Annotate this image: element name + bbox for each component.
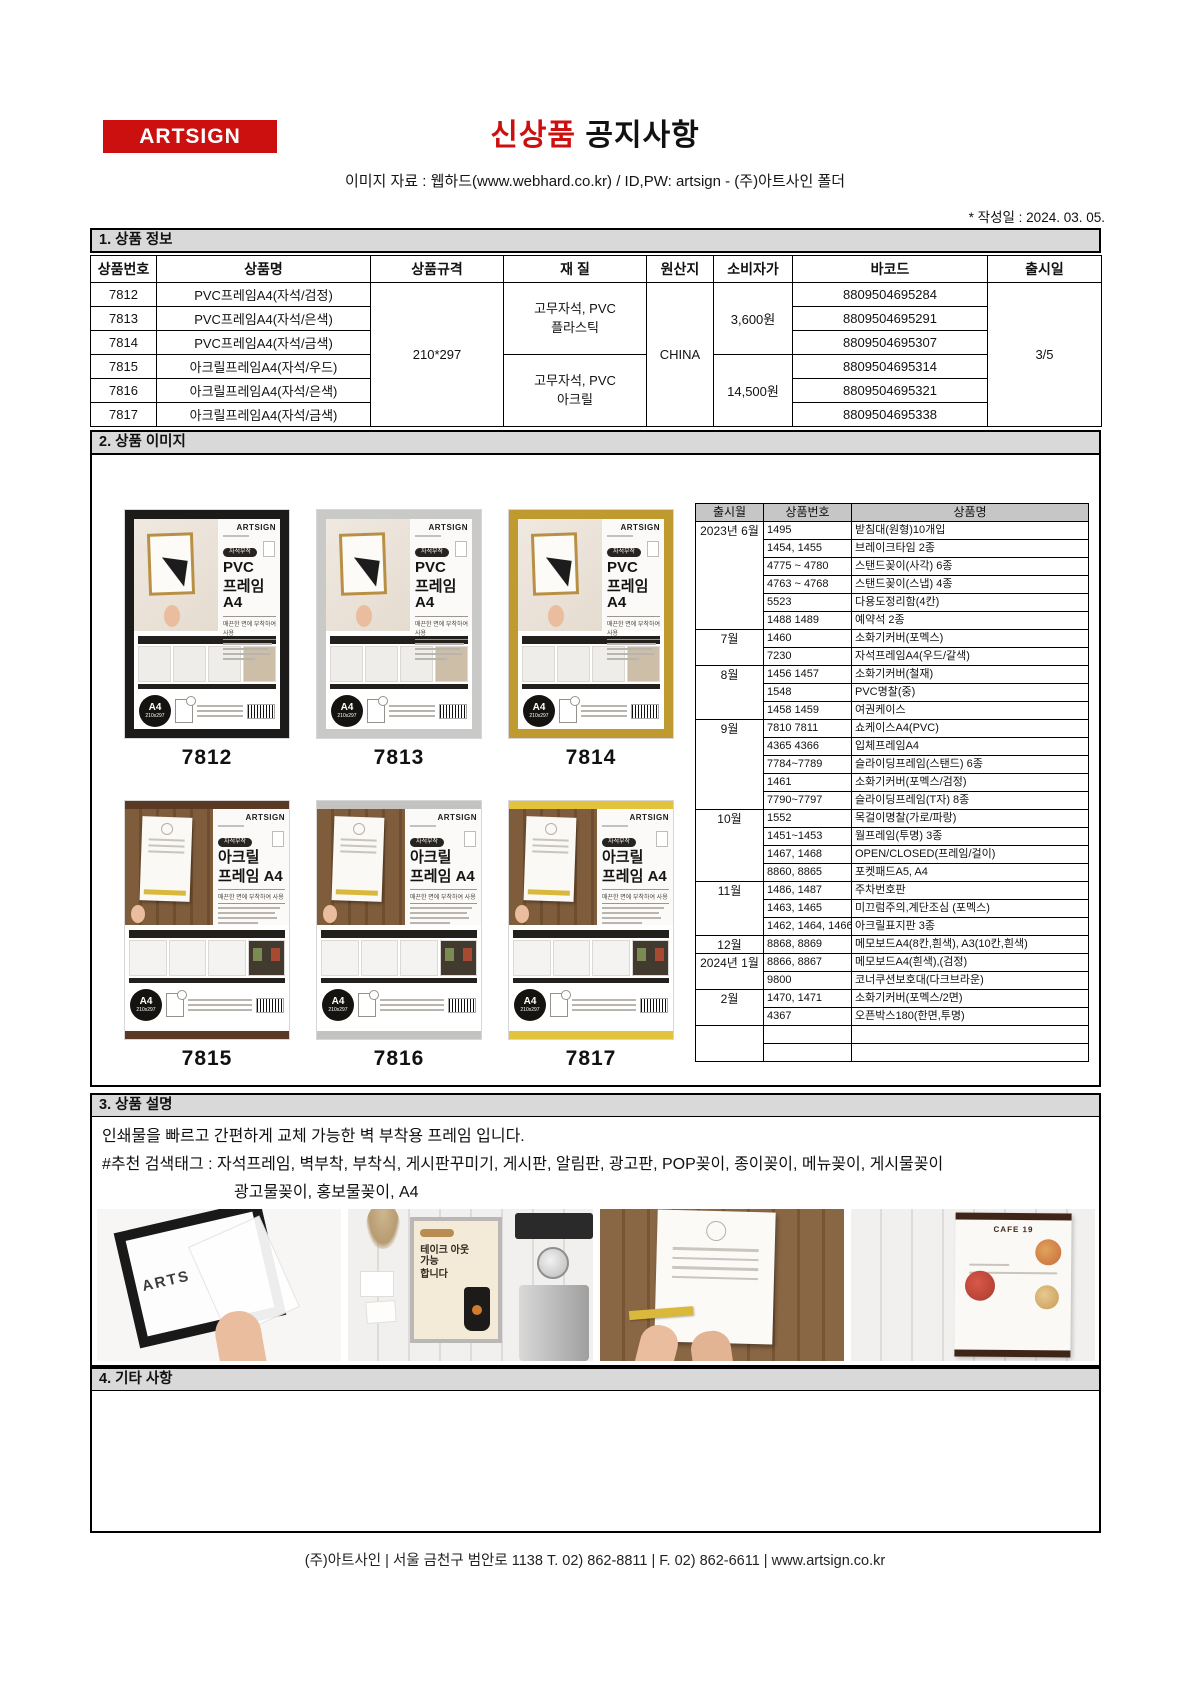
- release-product-name: 스탠드꽂이(스냅) 4종: [852, 576, 1089, 594]
- a4-sheet-icon: [656, 831, 668, 847]
- feature-bullets: [218, 907, 285, 924]
- section2-header: 2. 상품 이미지: [90, 430, 1101, 455]
- wall-card-graphic: [360, 1271, 394, 1297]
- text-line: [410, 922, 450, 924]
- text-line: [389, 715, 435, 717]
- spec-notes: [188, 996, 252, 1014]
- spec-notes: [572, 996, 636, 1014]
- text-line: [380, 999, 444, 1001]
- product-image-label: 7812: [125, 746, 289, 770]
- release-row: 8월1456 1457소화기커버(철재): [696, 666, 1089, 684]
- instruction-panels: [321, 940, 477, 976]
- pvc-cards-row: ARTSIGN 자석부착 PVC 프레임 A4 매끈한 면에 부착하여 사용 A…: [125, 510, 673, 738]
- strip-caption-bar: [330, 684, 468, 689]
- card-info-panel: ARTSIGN 자석부착 아크릴 프레임 A4 매끈한 면에 부착하여 사용: [213, 809, 289, 925]
- product-barcode: 8809504695314: [793, 355, 988, 379]
- column-header: 상품명: [157, 256, 371, 283]
- coffee-machine-graphic: [515, 1213, 593, 1361]
- poster-text-line: 테이크 아웃: [420, 1241, 492, 1256]
- text-line: [607, 648, 652, 650]
- magnet-badge: 자석부착: [415, 548, 449, 557]
- strip-caption-bar: [321, 978, 477, 983]
- card-photo-area: ARTSIGN 자석부착 아크릴 프레임 A4 매끈한 면에 부착하여 사용: [509, 809, 673, 925]
- dimension-diagram: [166, 993, 184, 1017]
- instruction-strip: [321, 930, 477, 983]
- release-row: 10월1552목걸이명찰(가로/파랑): [696, 810, 1089, 828]
- release-product-name: 예약석 2종: [852, 612, 1089, 630]
- release-product-no: 9800: [764, 972, 852, 990]
- release-month: 11월: [696, 882, 764, 936]
- product-name: 아크릴프레임A4(자석/금색): [157, 403, 371, 427]
- card-bottom-area: A4 210x297: [139, 695, 275, 727]
- release-product-name: 슬라이딩프레임(스탠드) 6종: [852, 756, 1089, 774]
- card-brand: ARTSIGN: [223, 523, 276, 532]
- card-bottom-area: A4 210x297: [514, 989, 668, 1021]
- release-column-header: 출시월: [696, 504, 764, 522]
- release-product-no: 4763 ~ 4768: [764, 576, 852, 594]
- instruction-panels: [129, 940, 285, 976]
- release-product-name: 슬라이딩프레임(T자) 8종: [852, 792, 1089, 810]
- coffee-cup-graphic: [464, 1287, 490, 1331]
- card-brand: ARTSIGN: [607, 523, 660, 532]
- text-line: [197, 710, 243, 712]
- a4-size-badge: A4 210x297: [130, 989, 162, 1021]
- release-history-table: 출시월상품번호상품명 2023년 6월1495받침대(원형)10개입1454, …: [695, 503, 1089, 1062]
- card-top-color-bar: [509, 801, 673, 809]
- instruction-panel: [557, 646, 590, 682]
- text-line: [148, 844, 184, 847]
- release-month: 7월: [696, 630, 764, 666]
- text-line: [410, 917, 469, 919]
- card-title-line1: 아크릴: [602, 850, 669, 867]
- dried-flower-graphic: [366, 1209, 400, 1249]
- product-image-label: 7813: [317, 746, 481, 770]
- text-line: [572, 999, 636, 1001]
- section4-header: 4. 기타 사항: [90, 1367, 1101, 1392]
- peel-corner-graphic: [158, 557, 187, 586]
- card-subtitle: 매끈한 면에 부착하여 사용: [607, 616, 660, 640]
- release-product-no: [764, 1044, 852, 1062]
- a4-sheet-icon: [263, 541, 275, 557]
- hand-graphic: [515, 905, 529, 923]
- photo-wood-wall-frame: [600, 1209, 844, 1361]
- product-card-7812: ARTSIGN 자석부착 PVC 프레임 A4 매끈한 면에 부착하여 사용 A…: [125, 510, 289, 738]
- strip-header-bar: [513, 930, 669, 938]
- card-bottom-color-bar: [125, 1031, 289, 1039]
- image-source-note: 이미지 자료 : 웹하드(www.webhard.co.kr) / ID,PW:…: [0, 170, 1190, 191]
- instruction-panel: [365, 646, 398, 682]
- product-image-label: 7814: [509, 746, 673, 770]
- release-product-no: 1495: [764, 522, 852, 540]
- gold-magnet-bar: [528, 889, 570, 895]
- dimension-diagram: [175, 699, 193, 723]
- card-bottom-color-bar: [317, 1031, 481, 1039]
- column-header: 원산지: [647, 256, 714, 283]
- a4-label: A4: [533, 703, 546, 713]
- micro-text-line: [602, 825, 628, 827]
- acrylic-cards-row: ARTSIGN 자석부착 아크릴 프레임 A4 매끈한 면에 부착하여 사용 A…: [125, 801, 673, 1039]
- card-title-line2: 프레임 A4: [218, 869, 285, 886]
- text-line: [602, 917, 661, 919]
- product-name: PVC프레임A4(자석/금색): [157, 331, 371, 355]
- frame-photo: [518, 519, 602, 631]
- section3-header: 3. 상품 설명: [90, 1093, 1101, 1118]
- release-product-no: 4365 4366: [764, 738, 852, 756]
- product-no: 7815: [91, 355, 157, 379]
- strip-caption-bar: [522, 684, 660, 689]
- release-product-no: 7810 7811: [764, 720, 852, 738]
- card-bottom-color-bar: [509, 1031, 673, 1039]
- product-barcode: 8809504695321: [793, 379, 988, 403]
- product-card-7815: ARTSIGN 자석부착 아크릴 프레임 A4 매끈한 면에 부착하여 사용 A…: [125, 801, 289, 1039]
- text-line: [218, 917, 277, 919]
- instruction-panel: [592, 940, 630, 976]
- a4-label: A4: [140, 997, 153, 1007]
- product-image-label: 7816: [317, 1047, 481, 1071]
- release-column-header: 상품명: [852, 504, 1089, 522]
- card-photo-area: ARTSIGN 자석부착 PVC 프레임 A4 매끈한 면에 부착하여 사용: [134, 519, 280, 631]
- photo-menu-poster: CAFE 19: [851, 1209, 1095, 1361]
- text-line: [532, 850, 568, 853]
- text-line: [380, 1004, 444, 1006]
- a4-label: A4: [332, 997, 345, 1007]
- poster-logo-circle: [705, 1221, 726, 1242]
- card-info-panel: ARTSIGN 자석부착 PVC 프레임 A4 매끈한 면에 부착하여 사용: [602, 519, 664, 631]
- text-line: [149, 838, 185, 841]
- spec-notes: [389, 702, 435, 720]
- text-line: [415, 643, 464, 645]
- text-line: [581, 705, 627, 707]
- text-line: [223, 658, 255, 660]
- card-title-line1: PVC: [607, 560, 660, 577]
- text-line: [340, 844, 376, 847]
- feature-bullets: [410, 907, 477, 924]
- text-line: [380, 1009, 444, 1011]
- release-month: 2023년 6월: [696, 522, 764, 630]
- description-text: 인쇄물을 빠르고 간편하게 교체 가능한 벽 부착용 프레임 입니다. #추천 …: [102, 1123, 1092, 1207]
- menu-poster-graphic: CAFE 19: [954, 1212, 1071, 1357]
- a4-sheet-icon: [647, 541, 659, 557]
- product-no: 7813: [91, 307, 157, 331]
- release-product-no: 7790~7797: [764, 792, 852, 810]
- feature-bullets: [607, 643, 660, 660]
- card-photo-area: ARTSIGN 자석부착 PVC 프레임 A4 매끈한 면에 부착하여 사용: [326, 519, 472, 631]
- magnet-badge: 자석부착: [410, 838, 444, 847]
- poster-graphic: [332, 816, 385, 902]
- text-line: [607, 658, 639, 660]
- card-info-panel: ARTSIGN 자석부착 아크릴 프레임 A4 매끈한 면에 부착하여 사용: [405, 809, 481, 925]
- card-title-line2: 프레임 A4: [415, 579, 468, 612]
- text-line: [602, 912, 659, 914]
- release-row: 7월1460소화기커버(포멕스): [696, 630, 1089, 648]
- text-line: [188, 1009, 252, 1011]
- card-bottom-area: A4 210x297: [331, 695, 467, 727]
- product-card-7817: ARTSIGN 자석부착 아크릴 프레임 A4 매끈한 면에 부착하여 사용 A…: [509, 801, 673, 1039]
- text-line: [341, 838, 377, 841]
- magnet-badge: 자석부착: [223, 548, 257, 557]
- release-product-no: 1460: [764, 630, 852, 648]
- wood-wall-photo: [509, 809, 597, 925]
- document-page: ARTSIGN 신상품 공지사항 이미지 자료 : 웹하드(www.webhar…: [0, 0, 1190, 1684]
- product-no: 7812: [91, 283, 157, 307]
- a4-dimensions: 210x297: [328, 1007, 347, 1014]
- product-no: 7814: [91, 331, 157, 355]
- product-no: 7816: [91, 379, 157, 403]
- card-bottom-area: A4 210x297: [322, 989, 476, 1021]
- written-date: * 작성일 : 2024. 03. 05.: [969, 206, 1105, 226]
- release-product-no: 1454, 1455: [764, 540, 852, 558]
- release-product-name: 다용도정리함(4칸): [852, 594, 1089, 612]
- strip-caption-bar: [129, 978, 285, 983]
- card-info-panel: ARTSIGN 자석부착 PVC 프레임 A4 매끈한 면에 부착하여 사용: [410, 519, 472, 631]
- strip-header-bar: [129, 930, 285, 938]
- card-title-line2: 프레임 A4: [602, 869, 669, 886]
- release-product-no: 1456 1457: [764, 666, 852, 684]
- wood-wall-photo: [317, 809, 405, 925]
- food-photo-circle: [1035, 1239, 1061, 1265]
- release-product-name: 메모보드A4(8칸,흰색), A3(10칸,흰색): [852, 936, 1089, 954]
- instruction-strip: [513, 930, 669, 983]
- card-brand: ARTSIGN: [415, 523, 468, 532]
- release-product-no: 1467, 1468: [764, 846, 852, 864]
- release-month: 12월: [696, 936, 764, 954]
- a4-size-badge: A4 210x297: [514, 989, 546, 1021]
- release-product-name: 스탠드꽂이(사각) 6종: [852, 558, 1089, 576]
- poster-badge-graphic: [420, 1229, 454, 1237]
- text-line: [672, 1256, 758, 1261]
- release-product-name: OPEN/CLOSED(프레임/걸이): [852, 846, 1089, 864]
- release-month: 10월: [696, 810, 764, 882]
- card-title-line2: 프레임 A4: [607, 579, 660, 612]
- product-card-7814: ARTSIGN 자석부착 PVC 프레임 A4 매끈한 면에 부착하여 사용 A…: [509, 510, 673, 738]
- dimension-diagram: [367, 699, 385, 723]
- release-product-no: 1486, 1487: [764, 882, 852, 900]
- text-line: [602, 907, 664, 909]
- company-footer: (주)아트사인 | 서울 금천구 범안로 1138 T. 02) 862-881…: [0, 1549, 1190, 1570]
- description-line2: #추천 검색태그 : 자석프레임, 벽부착, 부착식, 게시판꾸미기, 게시판,…: [102, 1151, 1092, 1179]
- spec-notes: [380, 996, 444, 1014]
- card-info-panel: ARTSIGN 자석부착 아크릴 프레임 A4 매끈한 면에 부착하여 사용: [597, 809, 673, 925]
- release-row: 12월8868, 8869메모보드A4(8칸,흰색), A3(10칸,흰색): [696, 936, 1089, 954]
- a4-dimensions: 210x297: [145, 713, 164, 720]
- product-image-label: 7815: [125, 1047, 289, 1071]
- product-name: 아크릴프레임A4(자석/은색): [157, 379, 371, 403]
- barcode-graphic: [640, 998, 668, 1013]
- release-product-name: 소화기커버(철재): [852, 666, 1089, 684]
- frame-photo: [134, 519, 218, 631]
- food-photo-circle: [965, 1271, 995, 1301]
- card-subtitle: 매끈한 면에 부착하여 사용: [223, 616, 276, 640]
- instruction-panel: [440, 940, 478, 976]
- card-subtitle: 매끈한 면에 부착하여 사용: [415, 616, 468, 640]
- product-name: PVC프레임A4(자석/은색): [157, 307, 371, 331]
- instruction-panel: [169, 940, 207, 976]
- micro-text-line: [415, 535, 441, 537]
- micro-text-line: [218, 825, 244, 827]
- release-product-no: 1461: [764, 774, 852, 792]
- text-line: [581, 710, 627, 712]
- release-product-no: 1462, 1464, 1466: [764, 918, 852, 936]
- hand-graphic: [164, 605, 180, 627]
- product-barcode: 8809504695307: [793, 331, 988, 355]
- a4-dimensions: 210x297: [136, 1007, 155, 1014]
- release-product-name: 받침대(원형)10개입: [852, 522, 1089, 540]
- release-product-no: 1552: [764, 810, 852, 828]
- a4-sheet-icon: [455, 541, 467, 557]
- arts-text: ARTS: [140, 1268, 191, 1296]
- release-row: 2023년 6월1495받침대(원형)10개입: [696, 522, 1089, 540]
- release-product-name: PVC명찰(중): [852, 684, 1089, 702]
- release-row: 9월7810 7811쇼케이스A4(PVC): [696, 720, 1089, 738]
- poster-logo-circle: [161, 823, 173, 835]
- a4-label: A4: [149, 703, 162, 713]
- card-brand: ARTSIGN: [218, 813, 285, 822]
- section1-header: 1. 상품 정보: [90, 228, 1101, 253]
- product-card-7813: ARTSIGN 자석부착 PVC 프레임 A4 매끈한 면에 부착하여 사용 A…: [317, 510, 481, 738]
- text-line: [197, 705, 243, 707]
- a4-label: A4: [524, 997, 537, 1007]
- a4-sheet-icon: [464, 831, 476, 847]
- acrylic-poster-graphic: [654, 1209, 775, 1344]
- text-line: [581, 715, 627, 717]
- dimension-diagram: [550, 993, 568, 1017]
- text-line: [197, 715, 243, 717]
- card-title-line2: 프레임 A4: [410, 869, 477, 886]
- release-product-no: 1458 1459: [764, 702, 852, 720]
- release-product-name: 코너쿠션보호대(다크브라운): [852, 972, 1089, 990]
- text-line: [532, 844, 568, 847]
- micro-text-line: [607, 535, 633, 537]
- instruction-panel: [330, 646, 363, 682]
- text-line: [340, 850, 376, 853]
- a4-label: A4: [341, 703, 354, 713]
- release-product-no: 1488 1489: [764, 612, 852, 630]
- card-top-color-bar: [125, 801, 289, 809]
- card-bottom-area: A4 210x297: [523, 695, 659, 727]
- barcode-graphic: [256, 998, 284, 1013]
- machine-body: [519, 1285, 589, 1361]
- text-line: [607, 653, 654, 655]
- product-name: PVC프레임A4(자석/검정): [157, 283, 371, 307]
- column-header: 출시일: [988, 256, 1102, 283]
- text-line: [389, 710, 435, 712]
- peel-corner-graphic: [350, 557, 379, 586]
- food-photo-circle: [1035, 1285, 1059, 1309]
- card-brand: ARTSIGN: [602, 813, 669, 822]
- release-product-name: 소화기커버(포멕스/검정): [852, 774, 1089, 792]
- poster-text-line: 합니다: [420, 1269, 492, 1282]
- release-month: 2024년 1월: [696, 954, 764, 990]
- text-line: [223, 653, 270, 655]
- release-product-name: 여권케이스: [852, 702, 1089, 720]
- card-subtitle: 매끈한 면에 부착하여 사용: [410, 889, 477, 904]
- dimension-diagram: [358, 993, 376, 1017]
- release-product-name: 오픈박스180(한면,투명): [852, 1008, 1089, 1026]
- release-row: 2월1470, 1471소화기커버(포멕스/2면): [696, 990, 1089, 1008]
- release-product-no: 1451~1453: [764, 828, 852, 846]
- product-barcode: 8809504695338: [793, 403, 988, 427]
- title-highlight: 신상품: [490, 119, 576, 152]
- release-product-name: [852, 1026, 1089, 1044]
- poster-graphic: [140, 816, 193, 902]
- card-subtitle: 매끈한 면에 부착하여 사용: [218, 889, 285, 904]
- text-line: [415, 658, 447, 660]
- release-product-no: 4367: [764, 1008, 852, 1026]
- usage-photos: ARTS 테이크 아웃 가능 합니다: [97, 1209, 1095, 1361]
- product-row: 7812PVC프레임A4(자석/검정)210*297고무자석, PVC 플라스틱…: [91, 283, 1102, 307]
- card-title-line1: 아크릴: [410, 850, 477, 867]
- hand-graphic: [356, 605, 372, 627]
- a4-size-badge: A4 210x297: [139, 695, 171, 727]
- photo-cafe-takeout-poster: 테이크 아웃 가능 합니다: [348, 1209, 592, 1361]
- cup-label-dot: [472, 1305, 482, 1315]
- card-title-line2: 프레임 A4: [223, 579, 276, 612]
- other-notes-box: [90, 1391, 1101, 1533]
- feature-bullets: [223, 643, 276, 660]
- release-product-no: [764, 1026, 852, 1044]
- text-line: [188, 1004, 252, 1006]
- micro-text-line: [223, 535, 249, 537]
- release-product-name: 포켓패드A5, A4: [852, 864, 1089, 882]
- product-row: 7815아크릴프레임A4(자석/우드)고무자석, PVC 아크릴14,500원8…: [91, 355, 1102, 379]
- card-photo-area: ARTSIGN 자석부착 PVC 프레임 A4 매끈한 면에 부착하여 사용: [518, 519, 664, 631]
- text-line: [223, 643, 272, 645]
- description-line1: 인쇄물을 빠르고 간편하게 교체 가능한 벽 부착용 프레임 입니다.: [102, 1123, 1092, 1151]
- micro-text-line: [410, 825, 436, 827]
- release-product-name: 입체프레임A4: [852, 738, 1089, 756]
- text-line: [572, 1009, 636, 1011]
- column-header: 상품규격: [371, 256, 504, 283]
- product-price: 14,500원: [714, 355, 793, 427]
- poster-text-line: 가능: [420, 1256, 492, 1269]
- card-title-line1: PVC: [223, 560, 276, 577]
- column-header: 재 질: [504, 256, 647, 283]
- strip-caption-bar: [513, 978, 669, 983]
- hand-graphic: [131, 905, 145, 923]
- text-line: [672, 1247, 758, 1252]
- release-month: 8월: [696, 666, 764, 720]
- strip-header-bar: [321, 930, 477, 938]
- column-header: 상품번호: [91, 256, 157, 283]
- release-product-no: 8860, 8865: [764, 864, 852, 882]
- release-product-no: 7230: [764, 648, 852, 666]
- a4-sheet-icon: [272, 831, 284, 847]
- text-line: [572, 1004, 636, 1006]
- release-product-name: 미끄럼주의,계단조심 (포멕스): [852, 900, 1089, 918]
- release-product-name: 메모보드A4(흰색),(검정): [852, 954, 1089, 972]
- description-line3: 광고물꽂이, 홍보물꽂이, A4: [102, 1179, 1092, 1207]
- release-product-name: 자석프레임A4(우드/갈색): [852, 648, 1089, 666]
- instruction-panel: [522, 646, 555, 682]
- product-info-table: 상품번호상품명상품규격재 질원산지소비자가바코드출시일 7812PVC프레임A4…: [90, 255, 1102, 427]
- spec-notes: [581, 702, 627, 720]
- product-price: 3,600원: [714, 283, 793, 355]
- card-bottom-area: A4 210x297: [130, 989, 284, 1021]
- gold-magnet-bar: [144, 889, 186, 895]
- barcode-graphic: [631, 704, 659, 719]
- product-info-header-row: 상품번호상품명상품규격재 질원산지소비자가바코드출시일: [91, 256, 1102, 283]
- poster-top-bar: [955, 1212, 1071, 1220]
- release-product-name: 쇼케이스A4(PVC): [852, 720, 1089, 738]
- text-line: [969, 1264, 1009, 1266]
- spec-notes: [197, 702, 243, 720]
- text-line: [389, 705, 435, 707]
- product-release-date: 3/5: [988, 283, 1102, 427]
- release-column-header: 상품번호: [764, 504, 852, 522]
- card-title-line1: PVC: [415, 560, 468, 577]
- magnet-badge: 자석부착: [602, 838, 636, 847]
- card-title-line1: 아크릴: [218, 850, 285, 867]
